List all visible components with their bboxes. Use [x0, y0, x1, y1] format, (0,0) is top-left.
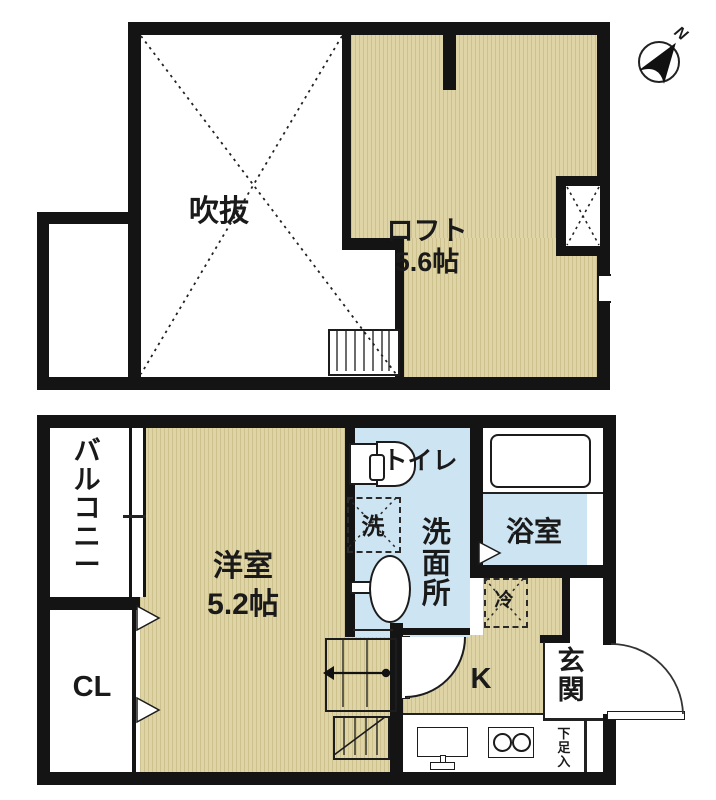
stairs-lower — [333, 716, 390, 760]
kitchen-label: K — [466, 664, 496, 695]
entrance-door-arc — [611, 644, 683, 714]
wall — [470, 565, 616, 578]
loft-size-label: 5.6帖 — [377, 248, 477, 277]
washroom-door-leaf — [401, 636, 410, 699]
compass-north-label: N — [665, 20, 694, 48]
shoebox-divider — [584, 721, 587, 772]
window-tick — [123, 515, 146, 518]
niche-void — [566, 186, 600, 246]
entrance-divider — [543, 718, 603, 721]
wall — [37, 415, 616, 428]
wall — [37, 377, 610, 390]
faucet-base-icon — [430, 762, 455, 770]
wall — [37, 597, 140, 610]
wall — [37, 212, 140, 224]
door-threshold — [353, 629, 393, 631]
kitchen-sink-icon — [417, 727, 468, 757]
wall — [37, 772, 616, 785]
wall — [345, 623, 353, 637]
washroom-label: 洗面所 — [421, 518, 451, 610]
bathroom-label: 浴室 — [489, 517, 579, 547]
western-room-label: 洋室 — [193, 551, 293, 583]
western-room-size-label: 5.2帖 — [193, 589, 293, 621]
toilet-label: トイレ — [380, 448, 460, 475]
stove-burner-icon — [512, 733, 531, 752]
bath-partition-line — [483, 492, 603, 494]
loft-label: ロフト — [377, 217, 477, 246]
wash-basin-icon — [369, 555, 411, 623]
wall — [470, 415, 483, 578]
balcony-window — [129, 428, 146, 597]
wall — [603, 415, 616, 645]
balcony-label: バルコニー — [73, 437, 101, 580]
entrance-label: 玄関 — [557, 647, 585, 704]
door-header — [403, 628, 470, 635]
wall — [562, 577, 570, 635]
window-gap — [599, 274, 611, 303]
stove-burner-icon — [493, 733, 512, 752]
laundry-label: 洗 — [358, 514, 388, 538]
stairs-landing — [325, 638, 397, 712]
wall-stub — [443, 35, 456, 90]
entrance-boundary — [543, 642, 545, 718]
wall — [128, 22, 141, 390]
bathtub-icon — [490, 434, 591, 488]
wall — [128, 22, 610, 35]
stairs-upper-floor — [328, 329, 400, 376]
closet-wall — [132, 610, 136, 772]
wall — [342, 35, 351, 250]
refrigerator-label: 冷 — [489, 591, 519, 611]
entrance-door-leaf — [607, 711, 685, 720]
wall — [603, 714, 616, 785]
shoe-box-label: 下足入 — [557, 727, 571, 768]
floor-plan: 吹抜 ロフト 5.6帖 N — [0, 0, 716, 800]
closet-label: CL — [57, 672, 127, 703]
wall — [37, 212, 49, 390]
void-label: 吹抜 — [169, 196, 269, 228]
